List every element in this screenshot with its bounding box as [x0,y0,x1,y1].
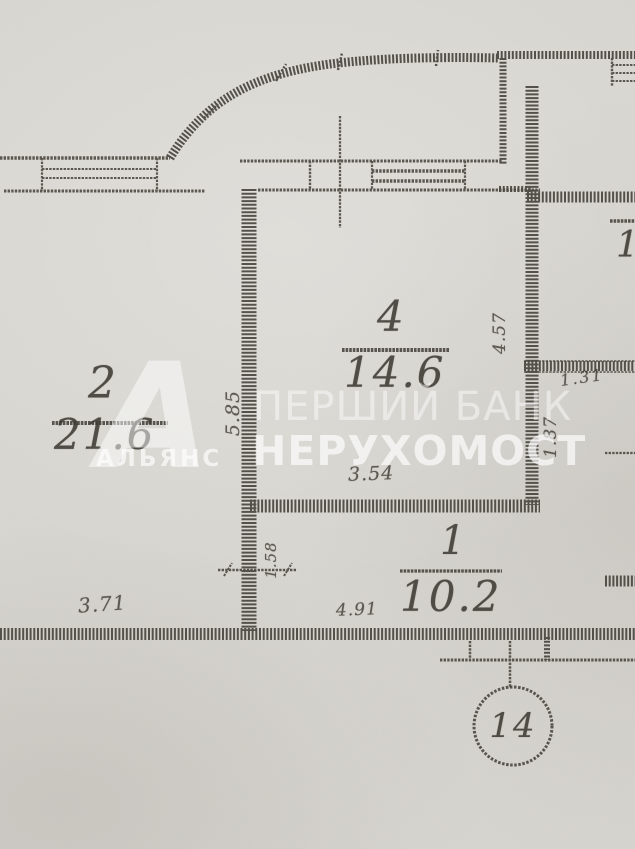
dimension-1-58: 1.58 [262,532,280,588]
dimension-5-85: 5.85 [222,373,244,453]
floor-plan-scan: 2 21.6 4 14.6 1 10.2 1 14 5.85 3.71 3.54… [0,0,635,849]
room-1-area: 10.2 [400,572,502,621]
watermark-line2: НЕРУХОМОСТ [252,427,586,475]
walls-thick [0,50,635,660]
room-4-number: 4 [377,292,404,341]
dimension-4-91: 4.91 [336,599,379,620]
unit-number: 14 [485,706,541,746]
room-1-number: 1 [440,518,465,564]
dimension-4-57: 4.57 [490,298,510,368]
bay-curved-wall [170,58,498,158]
watermark-line1: ПЕРШИЙ БАНК [253,384,572,430]
dimension-3-71: 3.71 [77,590,127,617]
alliance-logo-text: АЛЬЯНС [96,446,222,472]
partial-room-label: 1 [616,225,635,266]
